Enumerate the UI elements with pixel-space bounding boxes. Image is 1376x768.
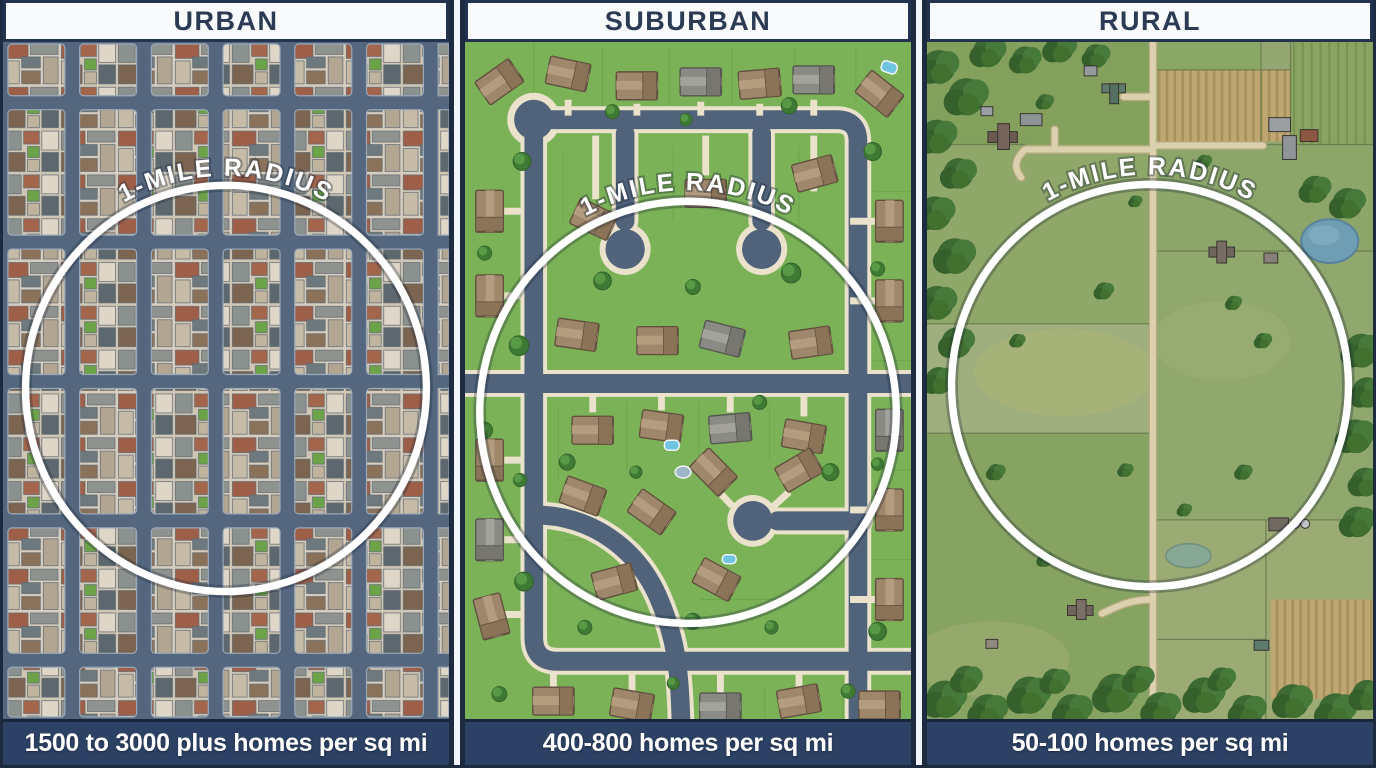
rural-caption-bar: 50-100 homes per sq mi bbox=[927, 719, 1373, 765]
urban-map-illustration: 1-MILE RADIUS bbox=[3, 42, 449, 719]
suburban-map: 1-MILE RADIUS bbox=[465, 42, 911, 719]
rural-title: RURAL bbox=[1099, 6, 1201, 37]
small-barn bbox=[1264, 253, 1278, 263]
bottom-green-shed bbox=[1254, 640, 1269, 650]
rural-map: 1-MILE RADIUS bbox=[927, 42, 1373, 719]
metal-barn-2 bbox=[1283, 136, 1297, 160]
suburban-caption-bar: 400-800 homes per sq mi bbox=[465, 719, 911, 765]
gray-shed bbox=[1084, 66, 1097, 76]
urban-title: URBAN bbox=[174, 6, 279, 37]
bottom-shed bbox=[986, 639, 998, 648]
panel-divider bbox=[449, 0, 465, 765]
suburban-header: SUBURBAN bbox=[465, 0, 911, 42]
urban-header: URBAN bbox=[3, 0, 449, 42]
shed bbox=[981, 107, 993, 116]
panel-urban: URBAN bbox=[3, 0, 449, 765]
suburban-density-text: 400-800 homes per sq mi bbox=[543, 729, 833, 758]
red-barn bbox=[1300, 130, 1318, 142]
barn bbox=[1020, 114, 1042, 126]
density-comparison-figure: URBAN bbox=[0, 0, 1376, 768]
metal-barn bbox=[1269, 118, 1291, 132]
rural-header: RURAL bbox=[927, 0, 1373, 42]
urban-map: 1-MILE RADIUS bbox=[3, 42, 449, 719]
panel-suburban: SUBURBAN bbox=[465, 0, 911, 765]
urban-density-text: 1500 to 3000 plus homes per sq mi bbox=[25, 729, 428, 758]
panel-divider bbox=[911, 0, 927, 765]
rural-density-text: 50-100 homes per sq mi bbox=[1012, 729, 1289, 758]
rural-map-illustration: 1-MILE RADIUS bbox=[927, 42, 1373, 719]
urban-caption-bar: 1500 to 3000 plus homes per sq mi bbox=[3, 719, 449, 765]
panel-rural: RURAL bbox=[927, 0, 1373, 765]
suburban-map-illustration: 1-MILE RADIUS bbox=[465, 42, 911, 719]
suburban-title: SUBURBAN bbox=[605, 6, 772, 37]
